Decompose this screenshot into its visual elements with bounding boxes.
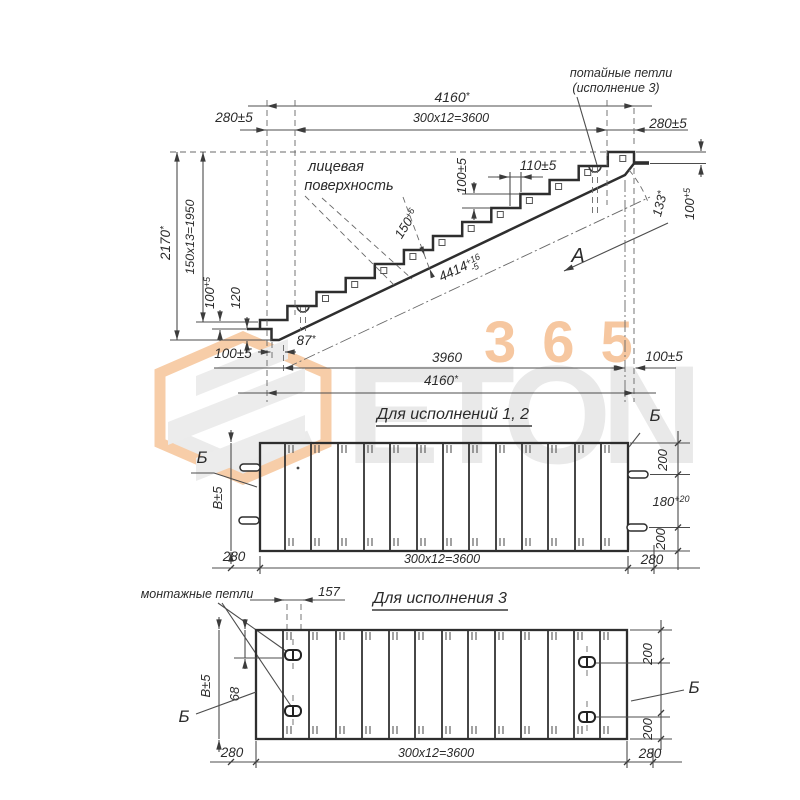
svg-text:3960: 3960 [432,350,463,365]
svg-text:280±5: 280±5 [648,116,687,131]
svg-text:300x12=3600: 300x12=3600 [404,552,480,566]
svg-text:100±5: 100±5 [454,157,469,194]
svg-text:280: 280 [222,549,246,564]
svg-text:В±5: В±5 [198,674,213,698]
svg-text:100±5: 100±5 [645,349,683,364]
svg-text:200: 200 [640,642,655,665]
svg-text:300x12=3600: 300x12=3600 [413,111,489,125]
svg-text:300x12=3600: 300x12=3600 [398,746,474,760]
svg-text:4160*: 4160* [424,373,459,388]
svg-text:133*: 133* [649,188,670,218]
svg-text:180+20: 180+20 [653,494,690,509]
svg-text:4160*: 4160* [434,89,470,105]
svg-text:Для исполнений 1, 2: Для исполнений 1, 2 [375,406,529,423]
svg-text:100+5: 100+5 [682,187,697,220]
svg-text:лицевая: лицевая [307,159,364,175]
svg-text:100±5: 100±5 [214,346,252,361]
svg-text:150+6: 150+6 [391,206,421,241]
svg-text:280±5: 280±5 [214,110,253,125]
svg-text:280: 280 [220,745,244,760]
svg-text:200: 200 [640,717,655,740]
svg-text:157: 157 [318,584,340,599]
svg-text:В±5: В±5 [210,486,225,510]
svg-text:(исполнение 3): (исполнение 3) [572,81,659,95]
svg-text:87*: 87* [297,333,317,348]
svg-text:Для исполнения 3: Для исполнения 3 [371,590,507,607]
svg-text:Б: Б [196,448,207,467]
svg-text:поверхность: поверхность [304,178,393,194]
svg-text:2170*: 2170* [158,225,173,261]
svg-text:А: А [570,245,584,267]
svg-text:120: 120 [228,286,243,308]
svg-text:68: 68 [227,686,242,701]
svg-text:200: 200 [653,527,668,550]
svg-text:110±5: 110±5 [520,158,557,173]
svg-text:Б: Б [688,678,699,697]
svg-text:монтажные петли: монтажные петли [141,587,254,601]
svg-text:200: 200 [655,448,670,471]
svg-text:100+5: 100+5 [202,276,217,309]
svg-text:150x13=1950: 150x13=1950 [183,199,197,274]
svg-text:280: 280 [638,746,662,761]
svg-text:Б: Б [649,406,660,425]
svg-text:4414+16-5: 4414+16-5 [436,251,485,287]
svg-text:Б: Б [178,707,189,726]
svg-text:365: 365 [484,310,659,375]
svg-text:280: 280 [640,552,664,567]
svg-text:потайные петли: потайные петли [570,66,672,80]
